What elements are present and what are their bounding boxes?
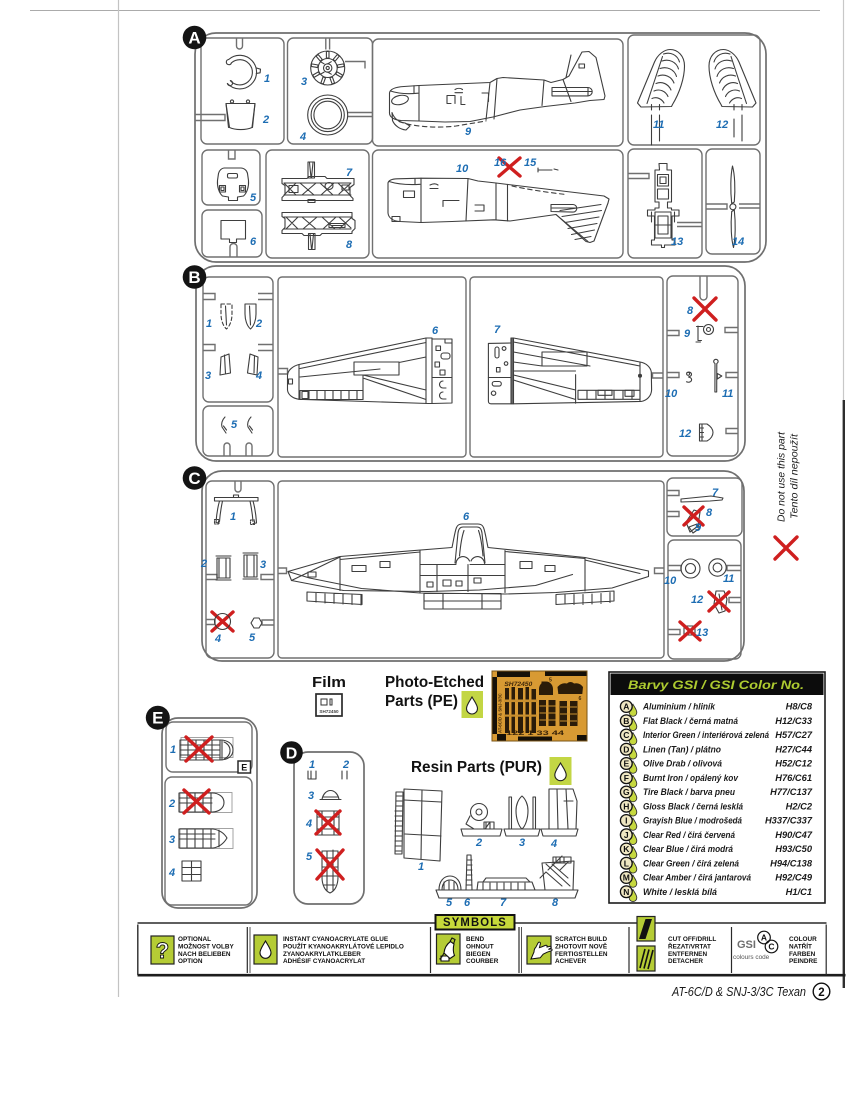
svg-text:AT-6C/D & SNJ-3/3C Texan: AT-6C/D & SNJ-3/3C Texan <box>671 985 806 999</box>
svg-text:7: 7 <box>500 897 507 909</box>
svg-text:H12/C33: H12/C33 <box>775 716 813 726</box>
svg-text:ADHÉSIF CYANOACRYLAT: ADHÉSIF CYANOACRYLAT <box>283 956 365 965</box>
svg-text:1: 1 <box>230 511 236 523</box>
svg-text:Film: Film <box>312 675 346 691</box>
svg-text:MOŽNOST VOLBY: MOŽNOST VOLBY <box>178 941 234 950</box>
svg-text:8: 8 <box>706 507 713 519</box>
svg-text:1: 1 <box>264 73 270 85</box>
svg-text:E: E <box>152 709 163 728</box>
svg-text:12: 12 <box>716 119 728 131</box>
svg-text:5: 5 <box>446 897 453 909</box>
svg-text:Photo-Etched: Photo-Etched <box>385 674 484 691</box>
svg-text:4: 4 <box>214 633 221 645</box>
svg-text:H52/C12: H52/C12 <box>775 759 813 769</box>
svg-text:10: 10 <box>665 388 678 400</box>
svg-text:K: K <box>623 844 630 854</box>
svg-text:12: 12 <box>679 428 691 440</box>
svg-text:11: 11 <box>653 119 664 131</box>
svg-text:ACHEVER: ACHEVER <box>555 958 587 965</box>
svg-text:7: 7 <box>346 167 353 179</box>
svg-text:E: E <box>623 759 629 769</box>
svg-text:CUT OFF/DRILL: CUT OFF/DRILL <box>668 936 716 943</box>
svg-text:FARBEN: FARBEN <box>789 951 816 958</box>
svg-text:H1/C1: H1/C1 <box>786 887 812 897</box>
svg-text:5: 5 <box>250 192 257 204</box>
svg-text:5: 5 <box>306 851 313 863</box>
svg-text:A: A <box>761 933 767 943</box>
svg-text:BIEGEN: BIEGEN <box>466 951 491 958</box>
svg-text:3: 3 <box>169 834 175 846</box>
svg-text:Tento díl nepoužít: Tento díl nepoužít <box>790 433 801 519</box>
svg-text:Barvy GSI / GSI Color No.: Barvy GSI / GSI Color No. <box>628 678 804 692</box>
svg-text:2: 2 <box>255 318 262 330</box>
svg-text:4: 4 <box>255 370 262 382</box>
svg-text:Grayish Blue / modrošedá: Grayish Blue / modrošedá <box>643 816 742 826</box>
svg-text:1: 1 <box>170 744 176 756</box>
svg-text:H337/C337: H337/C337 <box>765 816 813 826</box>
svg-text:9: 9 <box>465 126 472 138</box>
svg-text:8: 8 <box>346 239 353 251</box>
svg-text:H90/C47: H90/C47 <box>775 830 813 840</box>
svg-text:DETACHER: DETACHER <box>668 958 703 965</box>
svg-text:3: 3 <box>519 837 525 849</box>
svg-text:C: C <box>188 469 200 488</box>
svg-text:11: 11 <box>723 573 734 585</box>
svg-text:Gloss Black / černá lesklá: Gloss Black / černá lesklá <box>643 801 743 811</box>
svg-text:OPTIONAL: OPTIONAL <box>178 936 211 943</box>
svg-text:Clear Amber / čirá jantarová: Clear Amber / čirá jantarová <box>643 873 751 883</box>
svg-text:2: 2 <box>168 798 175 810</box>
svg-text:F: F <box>624 773 629 783</box>
svg-text:ŘEZAT/VRTAT: ŘEZAT/VRTAT <box>668 941 711 950</box>
svg-text:G: G <box>623 787 630 797</box>
svg-text:4: 4 <box>168 867 175 879</box>
svg-text:COURBER: COURBER <box>466 958 499 965</box>
svg-text:?: ? <box>156 938 169 963</box>
svg-text:2: 2 <box>475 837 482 849</box>
svg-text:Clear Green / čirá zelená: Clear Green / čirá zelená <box>643 858 739 868</box>
svg-text:H77/C137: H77/C137 <box>770 787 813 797</box>
svg-text:A: A <box>623 702 629 712</box>
svg-text:1: 1 <box>309 759 315 771</box>
svg-text:Clear Blue / čirá modrá: Clear Blue / čirá modrá <box>643 844 733 854</box>
svg-text:AT-6C/D & SNJ-3/3C: AT-6C/D & SNJ-3/3C <box>498 693 503 733</box>
svg-text:Linen (Tan) / plátno: Linen (Tan) / plátno <box>643 744 721 754</box>
svg-text:2: 2 <box>342 759 349 771</box>
svg-text:OPTION: OPTION <box>178 958 203 965</box>
svg-text:M: M <box>623 873 630 883</box>
svg-text:D: D <box>623 744 629 754</box>
svg-text:2: 2 <box>200 558 207 570</box>
svg-text:5: 5 <box>549 678 552 684</box>
svg-text:B: B <box>188 268 200 287</box>
svg-text:FERTIGSTELLEN: FERTIGSTELLEN <box>555 951 608 958</box>
svg-text:NACH BELIEBEN: NACH BELIEBEN <box>178 951 231 958</box>
svg-text:H76/C61: H76/C61 <box>775 773 812 783</box>
svg-text:9: 9 <box>684 328 691 340</box>
svg-text:122 1 33 44: 122 1 33 44 <box>506 730 565 737</box>
svg-text:3: 3 <box>260 559 266 571</box>
svg-text:ENTFERNEN: ENTFERNEN <box>668 951 707 958</box>
svg-text:SH72450: SH72450 <box>504 681 534 688</box>
svg-text:Aluminium / hliník: Aluminium / hliník <box>642 702 716 712</box>
svg-text:Do not use this part: Do not use this part <box>777 431 788 522</box>
svg-text:10: 10 <box>456 163 469 175</box>
svg-text:C: C <box>623 730 629 740</box>
svg-text:6: 6 <box>579 696 582 702</box>
svg-text:POUŽÍT KYANOAKRYLÁTOVÉ LEPIDLO: POUŽÍT KYANOAKRYLÁTOVÉ LEPIDLO <box>283 941 404 950</box>
svg-text:4: 4 <box>550 838 557 850</box>
svg-text:5: 5 <box>249 632 256 644</box>
svg-text:N: N <box>623 887 629 897</box>
svg-text:6: 6 <box>464 897 471 909</box>
svg-text:Parts (PE): Parts (PE) <box>385 693 458 710</box>
svg-text:3: 3 <box>308 790 314 802</box>
svg-text:15: 15 <box>524 157 537 169</box>
svg-text:L: L <box>624 858 629 868</box>
svg-text:Olive Drab / olivová: Olive Drab / olivová <box>643 759 722 769</box>
svg-text:A: A <box>188 29 200 48</box>
svg-text:ZHOTOVIT NOVĚ: ZHOTOVIT NOVĚ <box>555 941 608 950</box>
svg-text:7: 7 <box>712 487 719 499</box>
svg-text:10: 10 <box>664 575 677 587</box>
svg-text:PEINDRE: PEINDRE <box>789 958 818 965</box>
svg-text:H94/C138: H94/C138 <box>770 858 813 868</box>
svg-text:COLOUR: COLOUR <box>789 936 817 943</box>
svg-text:SCRATCH BUILD: SCRATCH BUILD <box>555 936 607 943</box>
svg-text:11: 11 <box>722 388 733 400</box>
svg-text:6: 6 <box>463 511 470 523</box>
svg-text:6: 6 <box>250 236 257 248</box>
svg-text:2: 2 <box>262 114 269 126</box>
svg-text:1: 1 <box>418 861 424 873</box>
svg-text:1: 1 <box>206 318 212 330</box>
svg-text:E: E <box>241 763 247 773</box>
svg-text:4: 4 <box>305 818 312 830</box>
svg-text:GSI: GSI <box>737 939 756 951</box>
svg-text:INSTANT CYANOACRYLATE GLUE: INSTANT CYANOACRYLATE GLUE <box>283 936 389 943</box>
svg-text:3: 3 <box>205 370 211 382</box>
svg-text:8: 8 <box>552 897 559 909</box>
svg-text:H27/C44: H27/C44 <box>775 744 813 754</box>
svg-text:4: 4 <box>299 131 306 143</box>
svg-text:9: 9 <box>695 522 702 534</box>
svg-text:H92/C49: H92/C49 <box>775 873 813 883</box>
svg-text:7: 7 <box>494 324 501 336</box>
svg-text:2: 2 <box>818 987 824 999</box>
svg-text:ZYANOAKRYLATKLEBER: ZYANOAKRYLATKLEBER <box>283 951 361 958</box>
svg-text:6: 6 <box>432 325 439 337</box>
svg-text:NATŘÍT: NATŘÍT <box>789 941 812 950</box>
svg-text:J: J <box>624 830 629 840</box>
svg-text:H93/C50: H93/C50 <box>775 844 813 854</box>
svg-text:Resin Parts (PUR): Resin Parts (PUR) <box>411 759 542 776</box>
svg-text:13: 13 <box>671 236 683 248</box>
svg-text:Clear Red / čirá červená: Clear Red / čirá červená <box>643 830 735 840</box>
svg-text:12: 12 <box>691 594 703 606</box>
svg-text:3: 3 <box>301 76 307 88</box>
svg-text:16: 16 <box>494 157 507 169</box>
svg-text:Interior Green / interiérová z: Interior Green / interiérová zelená <box>643 730 769 740</box>
svg-text:8: 8 <box>687 305 694 317</box>
svg-text:H2/C2: H2/C2 <box>786 801 813 811</box>
svg-text:BEND: BEND <box>466 936 484 943</box>
svg-text:OHNOUT: OHNOUT <box>466 943 494 950</box>
svg-text:Burnt Iron / opálený kov: Burnt Iron / opálený kov <box>643 773 739 783</box>
svg-text:B: B <box>623 716 629 726</box>
svg-text:H8/C8: H8/C8 <box>786 702 813 712</box>
svg-text:I: I <box>625 816 627 826</box>
svg-text:H57/C27: H57/C27 <box>775 730 813 740</box>
svg-text:13: 13 <box>696 627 708 639</box>
svg-text:White / lesklá bílá: White / lesklá bílá <box>643 887 717 897</box>
svg-text:SYMBOLS: SYMBOLS <box>443 917 507 929</box>
svg-text:14: 14 <box>732 236 744 248</box>
svg-text:C: C <box>768 942 774 952</box>
svg-text:colours code: colours code <box>733 954 770 961</box>
svg-text:D: D <box>286 745 298 762</box>
svg-text:Tire Black / barva pneu: Tire Black / barva pneu <box>643 787 735 797</box>
svg-text:5: 5 <box>231 419 238 431</box>
svg-text:H: H <box>623 801 629 811</box>
svg-text:SH72450: SH72450 <box>319 709 339 714</box>
svg-text:Flat Black / černá matná: Flat Black / černá matná <box>643 716 738 726</box>
